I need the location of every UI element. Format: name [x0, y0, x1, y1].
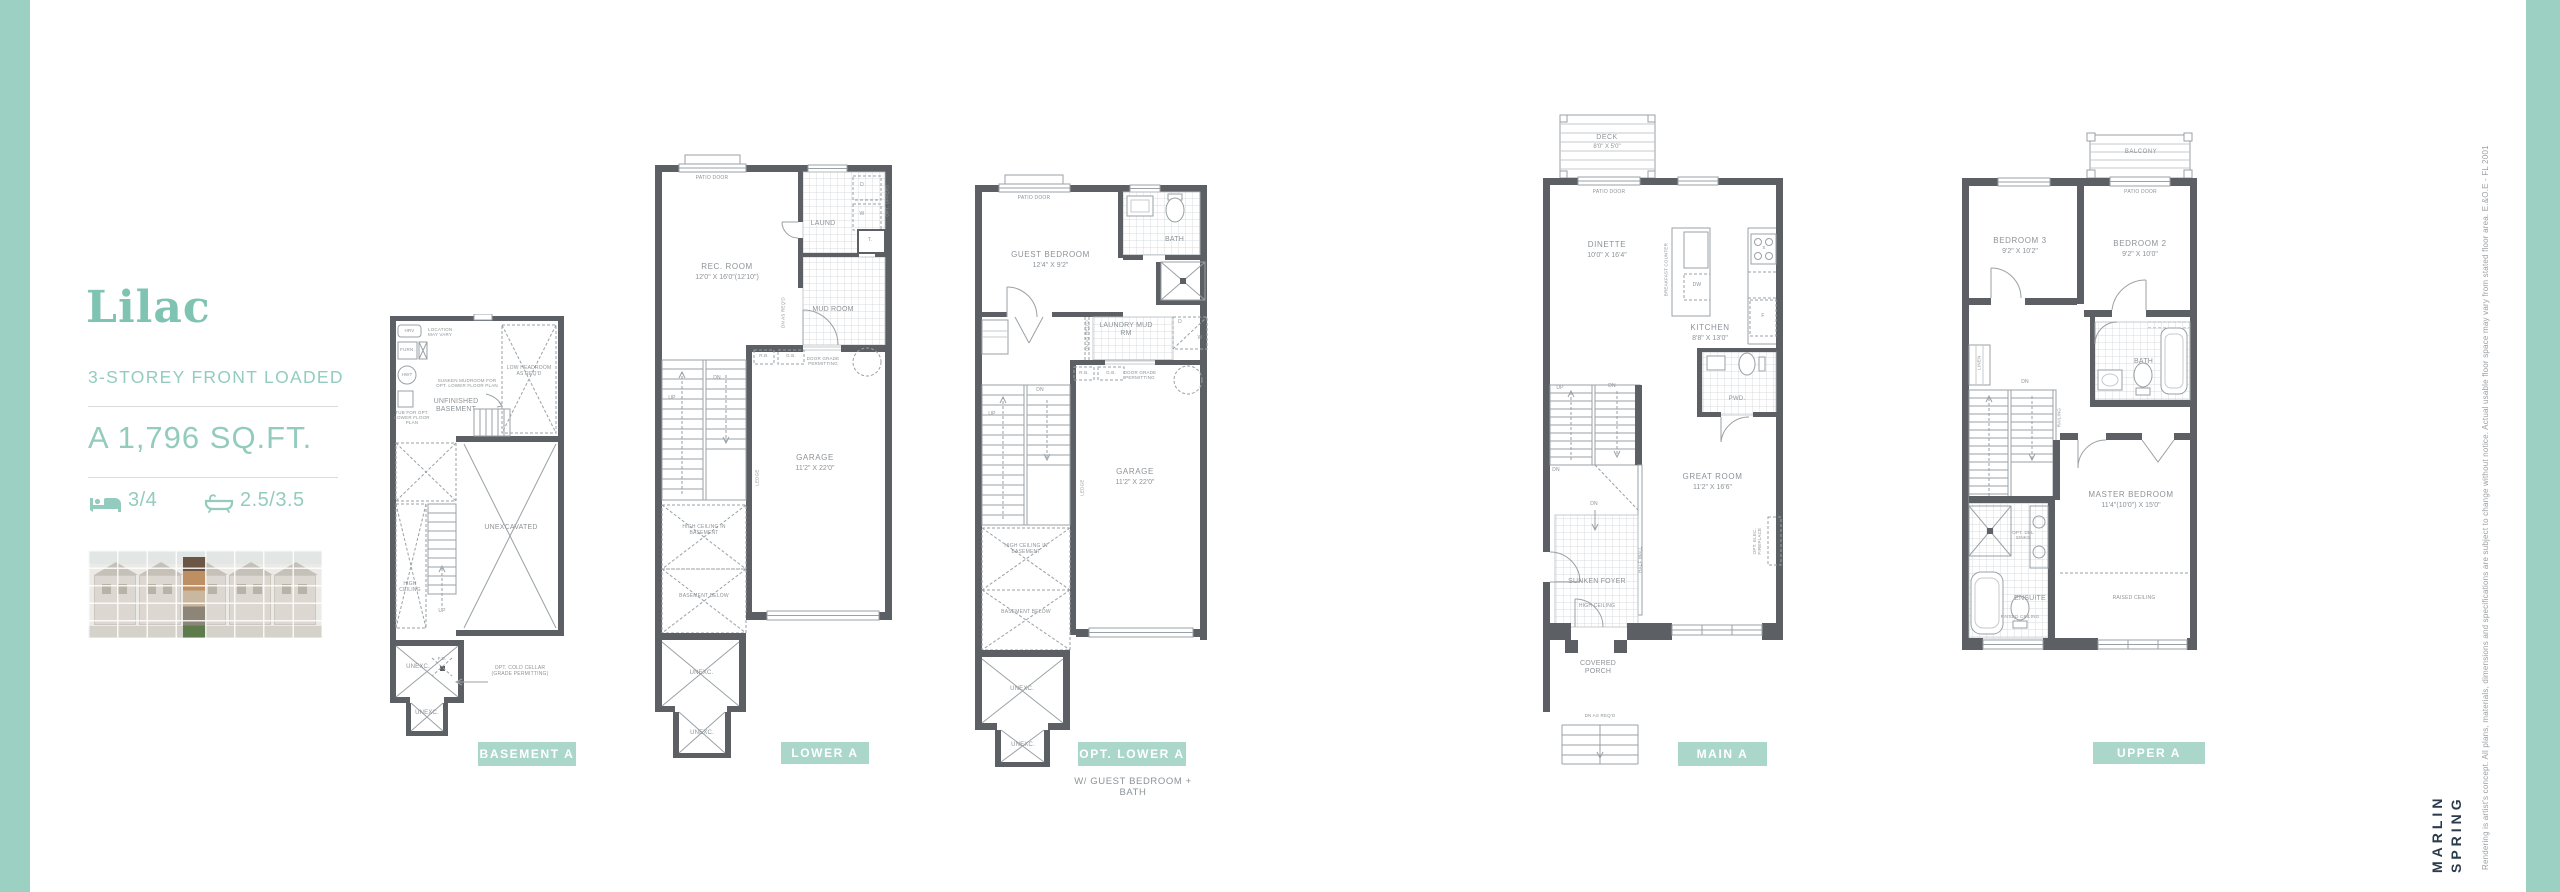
main-a-tag: MAIN A	[1678, 742, 1767, 766]
up-label: UP	[432, 609, 452, 615]
patio-door-label: PATIO DOOR	[1580, 190, 1638, 196]
unfinished-basement-label: UNFINISHED BASEMENT	[428, 398, 484, 414]
basement-below-label: BASEMENT BELOW	[995, 610, 1057, 616]
page-title: Lilac	[86, 282, 211, 333]
furnace-label: FURN.	[399, 347, 416, 352]
bedroom3-name: BEDROOM 3	[1980, 236, 2060, 245]
up-label: UP	[1551, 386, 1569, 392]
baths-count: 2.5/3.5	[240, 489, 305, 512]
washer-label: W	[857, 212, 867, 218]
dn-as-reqd-label: DN AS REQ'D	[780, 294, 785, 332]
fireplace-label: OPT. ELEC. FIREPLACE	[1752, 516, 1762, 566]
laundry-mud-label: LAUNDRY MUD RM	[1097, 322, 1155, 338]
brand-logo-spring: SPRING	[2448, 738, 2464, 873]
bath-icon	[203, 492, 235, 519]
garage-name: GARAGE	[770, 453, 860, 462]
dn-label: DN	[1585, 502, 1603, 508]
unexc-label: UNEXC.	[674, 670, 729, 677]
ledge-label: LEDGE	[754, 458, 759, 498]
kitchen-name: KITCHEN	[1675, 323, 1745, 332]
kitchen-dims: 8'8" x 13'0"	[1675, 335, 1745, 343]
dn-label: DN	[2016, 380, 2034, 386]
lower-a-tag: LOWER A	[781, 742, 869, 764]
guest-bedroom-name: GUEST BEDROOM	[1008, 250, 1093, 259]
bed-icon	[88, 492, 122, 519]
floorplan-lower: PATIO DOOR REC. ROOM 12'0" x 16'0"(12'10…	[655, 150, 900, 780]
floorplan-main-drawing	[1535, 112, 1790, 777]
brand-logo-marlin: MARLIN	[2429, 738, 2445, 873]
basement-below-label: BASEMENT BELOW	[672, 594, 736, 600]
bedroom2-dims: 9'2" x 10'0"	[2100, 251, 2180, 259]
garage-dims: 11'2" x 22'0"	[1090, 479, 1180, 487]
unexcavated-label: UNEXCAVATED	[482, 524, 540, 532]
dinette-dims: 10'0" x 16'4"	[1567, 252, 1647, 260]
rb-label: R.B.	[1075, 370, 1093, 375]
unexc-label: UNEXC.	[678, 730, 726, 737]
dn-label: DN	[1547, 468, 1565, 474]
high-ceiling-basement-label: HIGH CEILING IN BASEMENT	[672, 525, 736, 537]
low-headroom-label: LOW HEADROOM AS REQ'D	[506, 366, 552, 378]
plan-type-subtitle: 3-STOREY FRONT LOADED	[88, 367, 344, 388]
bath-label: BATH	[1152, 236, 1197, 244]
divider	[88, 406, 338, 407]
bedroom3-dims: 9'2" x 10'2"	[1980, 248, 2060, 256]
dn-as-reqd-label: DN AS REQ'D	[1084, 317, 1089, 355]
high-ceiling-label: HIGH CEILING	[1563, 604, 1631, 610]
unexc-label: UNEXC.	[997, 686, 1047, 693]
opt-lower-a-tag: OPT. LOWER A	[1078, 742, 1186, 766]
up-label: UP	[663, 396, 681, 402]
cold-cellar-note: OPT. COLD CELLAR (GRADE PERMITTING)	[488, 666, 552, 678]
patio-door-label: PATIO DOOR	[683, 176, 741, 182]
dinette-name: DINETTE	[1567, 240, 1647, 249]
elevation-thumbnail	[88, 550, 322, 638]
mud-room-label: MUD ROOM	[807, 306, 859, 314]
high-ceiling-label: HIGH CEILING	[393, 582, 427, 594]
raised-ceiling-label: RAISED CEILING	[2101, 596, 2167, 602]
hrv-label: HRV	[399, 328, 420, 333]
beds-count: 3/4	[128, 489, 157, 512]
bedroom2-name: BEDROOM 2	[2100, 239, 2180, 248]
balcony-label: BALCONY	[2110, 149, 2172, 156]
raised-ceiling-label: RAISED CEILING	[2000, 614, 2040, 619]
dn-as-reqd-label: DN AS REQ'D	[1571, 713, 1629, 718]
guest-bedroom-dims: 12'4" x 9'2"	[1008, 262, 1093, 270]
rec-room-name: REC. ROOM	[682, 262, 772, 271]
unexc-label: UNEXC.	[400, 664, 436, 671]
floor-drain-label: F.D.	[434, 656, 450, 661]
garage-name: GARAGE	[1090, 467, 1180, 476]
breakfast-counter-label: BREAKFAST COUNTER	[1663, 237, 1668, 303]
dn-label: DN	[1603, 384, 1621, 390]
brochure-page: Lilac 3-STOREY FRONT LOADED A 1,796 SQ.F…	[0, 0, 2560, 892]
floorplan-opt-lower: PATIO DOOR GUEST BEDROOM 12'4" x 9'2" BA…	[975, 170, 1220, 810]
great-room-dims: 11'2" x 16'6"	[1670, 484, 1755, 492]
stove-label: S	[1759, 245, 1769, 250]
divider	[88, 477, 338, 478]
great-room-name: GREAT ROOM	[1670, 472, 1755, 481]
rb-label: R.B.	[755, 353, 773, 358]
high-ceiling-basement-label: HIGH CEILING IN BASEMENT	[995, 544, 1057, 556]
left-accent-bar	[0, 0, 30, 892]
rec-room-dims: 12'0" x 16'0"(12'10")	[682, 274, 772, 282]
opt-lower-subtitle: W/ GUEST BEDROOM + BATH	[1071, 776, 1195, 798]
floorplan-basement: HRV LOCATION MAY VARY FURN. HWT TUB FOR …	[390, 314, 586, 769]
ledge-label: LEDGE	[1079, 469, 1084, 507]
garage-dims: 11'2" x 22'0"	[770, 465, 860, 473]
dryer-label: D	[1175, 320, 1185, 326]
washer-label: W	[1195, 336, 1205, 342]
hwt-label: HWT	[399, 372, 415, 377]
legal-disclaimer: Rendering is artist's concept. All plans…	[2481, 90, 2490, 870]
basement-a-tag: BASEMENT A	[478, 742, 576, 766]
deck-name: DECK	[1567, 134, 1647, 142]
dryer-label: D	[857, 183, 867, 189]
door-grade-label: DOOR GRADE PERMITTING	[1115, 370, 1165, 380]
patio-door-label: PATIO DOOR	[2113, 190, 2168, 196]
deck-dims: 8'0" x 5'0"	[1567, 144, 1647, 151]
floorplan-upper: BALCONY PATIO DOOR BEDROOM 3 9'2" x 10'2…	[1958, 132, 2208, 772]
unexc-label: UNEXC.	[410, 710, 444, 717]
right-accent-bar	[2526, 0, 2560, 892]
laundry-label: LAUND	[803, 220, 843, 228]
door-grade-label: DOOR GRADE PERMITTING	[800, 356, 846, 366]
ensuite-label: ENSUITE	[2006, 595, 2054, 603]
dn-label: DN	[1031, 388, 1049, 394]
patio-door-label: PATIO DOOR	[1003, 196, 1065, 202]
unexc-label: UNEXC.	[999, 742, 1047, 749]
thumb-grid-overlay	[88, 550, 322, 638]
railing-label: RAILING	[2056, 399, 2061, 437]
sunken-foyer-label: SUNKEN FOYER	[1568, 578, 1626, 586]
tub-label: T.	[863, 238, 877, 244]
up-label: UP	[983, 412, 1001, 418]
fridge-label: F	[1757, 314, 1769, 320]
covered-porch-label: COVERED PORCH	[1569, 660, 1627, 676]
bath-label: BATH	[2121, 358, 2166, 366]
opt-uppers-label: OPT. UPPERS	[884, 178, 889, 224]
powder-room-label: PWD.	[1715, 396, 1759, 403]
master-name: MASTER BEDROOM	[2076, 490, 2186, 499]
sunken-mudroom-note: SUNKEN MUDROOM FOR OPT. LOWER FLOOR PLAN	[436, 378, 498, 388]
floorplan-main: DECK 8'0" x 5'0" PATIO DOOR DINETTE 10'0…	[1535, 112, 1790, 777]
master-dims: 11'4"(10'0") x 15'0"	[2076, 502, 2186, 510]
half-wall-label: HALF WALL	[1637, 540, 1642, 580]
dishwasher-label: DW	[1687, 283, 1707, 289]
dn-label: DN	[708, 376, 726, 382]
floorplan-upper-drawing	[1958, 132, 2208, 772]
location-note: LOCATION MAY VARY	[428, 327, 462, 337]
linen-label: LINEN	[1976, 344, 1981, 382]
opt-dbl-sinks-label: OPT. DBL SINKS	[2010, 530, 2036, 540]
upper-a-tag: UPPER A	[2093, 742, 2205, 764]
plan-size: A 1,796 SQ.FT.	[88, 420, 312, 456]
